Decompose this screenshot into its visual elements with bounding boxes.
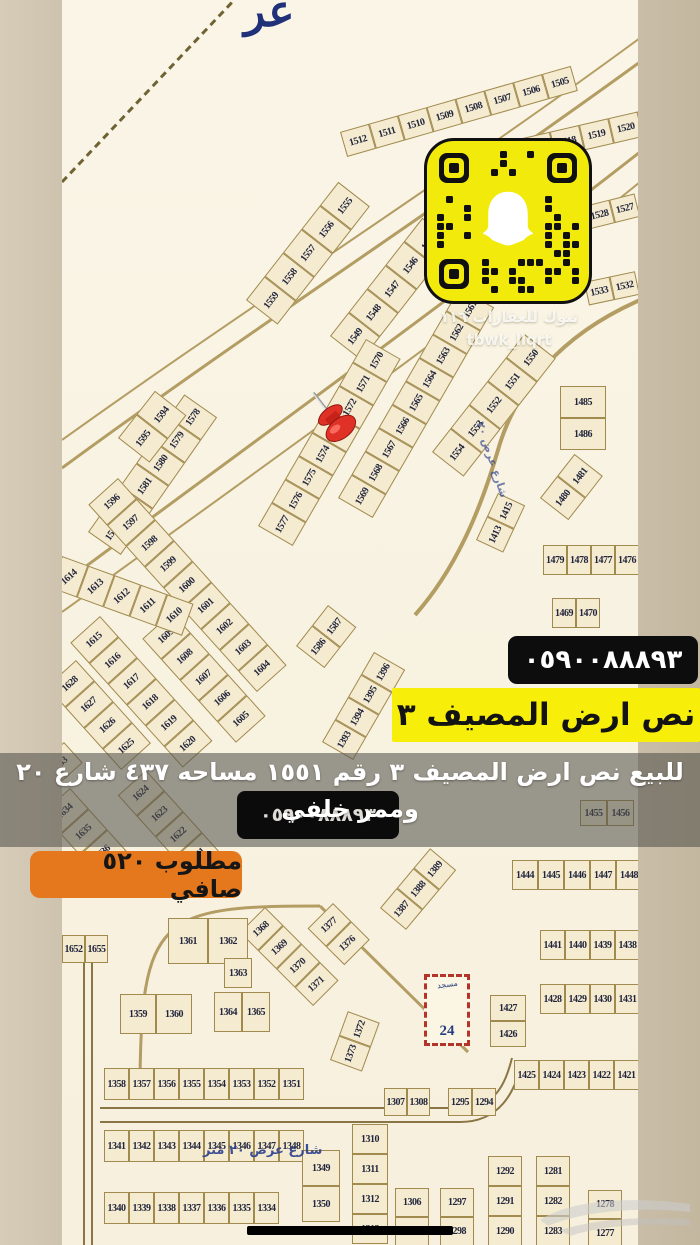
plot-number: 1337 (179, 1192, 204, 1224)
plot-number: 1364 (214, 992, 242, 1032)
price-text: مطلوب ٥٢٠ صافي (30, 847, 242, 903)
plot-number: 1445 (538, 860, 564, 890)
plot-column: 13061305 (395, 1188, 429, 1245)
plot-number: 1422 (589, 1060, 614, 1090)
plot-row: 12951294 (448, 1088, 496, 1116)
plot-number: 1297 (440, 1188, 474, 1217)
plot-number: 1532 (609, 271, 638, 300)
plot-number: 1426 (490, 1021, 526, 1047)
plot-row: 1428142914301431 (540, 984, 638, 1014)
photo-margin-left (0, 0, 62, 1245)
plot-row: 15591558155715561555 (246, 182, 370, 325)
phone-number: ٠٥٩٠٠٨٨٨٩٣ (524, 645, 683, 675)
plot-number: 1311 (352, 1154, 388, 1184)
plot-row: 14441445144614471448 (512, 860, 638, 890)
plot-row: 15861587 (296, 605, 356, 668)
plot-number: 1447 (590, 860, 616, 890)
plot-number: 1307 (384, 1088, 407, 1116)
plot-number: 1486 (560, 418, 606, 450)
plot-row: 13731372 (330, 1011, 380, 1071)
plot-number: 1338 (154, 1192, 179, 1224)
plot-number: 1340 (104, 1192, 129, 1224)
plot-number: 1430 (590, 984, 615, 1014)
plot-number: 1424 (539, 1060, 564, 1090)
plot-number: 1355 (179, 1068, 204, 1100)
description-line1: للبيع نص ارض المصيف ٣ رقم ١٥٥١ مساحه ٤٣٧… (0, 758, 700, 786)
plot-number: 1336 (204, 1192, 229, 1224)
plot-number: 1431 (615, 984, 638, 1014)
plot-row: 16521655 (62, 935, 108, 963)
plot-number: 1365 (242, 992, 270, 1032)
plot-row: 13581357135613551354135313521351 (104, 1068, 304, 1100)
plot-number: 1291 (488, 1186, 522, 1216)
plot-number: 1527 (609, 193, 638, 223)
plot-row: 14131415 (476, 493, 525, 553)
plot-number: 1356 (154, 1068, 179, 1100)
plot-number: 1352 (254, 1068, 279, 1100)
plot-number: 1479 (543, 545, 567, 575)
plot-number: 1294 (472, 1088, 496, 1116)
plot-number: 1343 (154, 1130, 179, 1162)
plot-number: 1354 (204, 1068, 229, 1100)
divider-line (247, 1226, 453, 1235)
plot-number: 1290 (488, 1216, 522, 1245)
plot-number: 1341 (104, 1130, 129, 1162)
mosque-word: مسجد (436, 979, 458, 991)
street-label: شارع عرض ٢٠ متر (203, 1143, 322, 1158)
listing-title-banner: نص ارض المصيف ٣ (392, 688, 700, 742)
plot-number: 1306 (395, 1188, 429, 1217)
qr-finder-icon (439, 259, 469, 289)
plot-number: 1339 (129, 1192, 154, 1224)
plot-row: 1441144014391438 (540, 930, 638, 960)
mosque-number: 24 (440, 1023, 455, 1040)
plot-number: 1477 (591, 545, 615, 575)
plot-column: 13491350 (302, 1150, 340, 1222)
plot-number: 1655 (85, 935, 108, 963)
plot-number: 1342 (129, 1130, 154, 1162)
plot-number: 1470 (576, 598, 600, 628)
plot-number: 1310 (352, 1124, 388, 1154)
plot-number: 1425 (514, 1060, 539, 1090)
map-calligraphy: عر (244, 0, 295, 37)
qr-finder-icon (547, 153, 577, 183)
plot-number: 1520 (608, 112, 638, 144)
plot-number: 1441 (540, 930, 565, 960)
plot-number: 1478 (567, 545, 591, 575)
snap-caption: تبوك للعقارات ١١٦ tbwk_llqrt (404, 306, 614, 351)
plot-column: 129212911290 (488, 1156, 522, 1245)
plot-number: 1361 (168, 918, 208, 964)
plot-row: 13641365 (214, 992, 270, 1032)
plot-number: 1505 (542, 66, 578, 99)
plot-number: 1358 (104, 1068, 129, 1100)
plot-number: 1438 (615, 930, 638, 960)
plot-number: 1334 (254, 1192, 279, 1224)
plot-row: 138713881389 (380, 848, 456, 930)
phone-number-banner: ٠٥٩٠٠٨٨٨٩٣ (508, 636, 698, 684)
plot-number: 1363 (224, 958, 252, 988)
plot-number: 1359 (120, 994, 156, 1034)
plot-number: 1335 (229, 1192, 254, 1224)
plot-number: 1485 (560, 386, 606, 418)
mosque-plot: مسجد 24 (424, 974, 470, 1046)
plot-row: 14251424142314221421 (514, 1060, 638, 1090)
plot-number: 1448 (616, 860, 638, 890)
plot-number: 1439 (590, 930, 615, 960)
description-band: للبيع نص ارض المصيف ٣ رقم ١٥٥١ مساحه ٤٣٧… (0, 753, 700, 847)
plot-row: 1363 (224, 958, 252, 988)
plot-number: 1423 (564, 1060, 589, 1090)
plot-number: 1429 (565, 984, 590, 1014)
plot-number: 1440 (565, 930, 590, 960)
plot-column: 12971298 (440, 1188, 474, 1245)
plot-number: 1444 (512, 860, 538, 890)
map-pin-icon (294, 376, 384, 471)
plot-number: 1344 (179, 1130, 204, 1162)
plot-row: 1479147814771476 (543, 545, 638, 575)
plot-number: 1421 (614, 1060, 638, 1090)
plot-number: 1428 (540, 984, 565, 1014)
plot-number: 1350 (302, 1186, 340, 1222)
plot-row: 13591360 (120, 994, 192, 1034)
plot-number: 1353 (229, 1068, 254, 1100)
plot-row: 15331532 (584, 271, 638, 305)
plot-row: 15281527 (584, 193, 638, 229)
plot-column: 14851486 (560, 386, 606, 450)
plot-number: 1357 (129, 1068, 154, 1100)
plot-column: 14271426 (490, 995, 526, 1047)
plot-row: 13771376 (308, 903, 370, 965)
snap-account-name: تبوك للعقارات ١١٦ (404, 306, 614, 329)
listing-title: نص ارض المصيف ٣ (397, 697, 696, 733)
plot-number: 1292 (488, 1156, 522, 1186)
story-page: 1512151115101509150815071506150515151516… (0, 0, 700, 1245)
plot-number: 1360 (156, 994, 192, 1034)
plot-number: 1308 (407, 1088, 430, 1116)
plot-row: 14691470 (552, 598, 600, 628)
snapchat-ghost-icon (475, 186, 541, 256)
plot-number: 1469 (552, 598, 576, 628)
plot-number: 1476 (615, 545, 638, 575)
snapcode-card[interactable] (424, 138, 592, 304)
plot-number: 1281 (536, 1156, 570, 1186)
plot-number: 1295 (448, 1088, 472, 1116)
plot-number: 1446 (564, 860, 590, 890)
plot-number: 1351 (279, 1068, 304, 1100)
plot-number: 1312 (352, 1184, 388, 1214)
watermark-logo (540, 1190, 700, 1245)
plot-number: 1652 (62, 935, 85, 963)
price-badge: مطلوب ٥٢٠ صافي (30, 851, 242, 898)
photo-margin-right (638, 0, 700, 1245)
qr-finder-icon (439, 153, 469, 183)
plot-row: 13071308 (384, 1088, 430, 1116)
snap-username: tbwk_llqrt (404, 329, 614, 352)
plot-number: 1427 (490, 995, 526, 1021)
description-line2: وممر خلفي (0, 795, 700, 823)
plot-row: 14801481 (540, 454, 603, 520)
plot-row: 1340133913381337133613351334 (104, 1192, 279, 1224)
